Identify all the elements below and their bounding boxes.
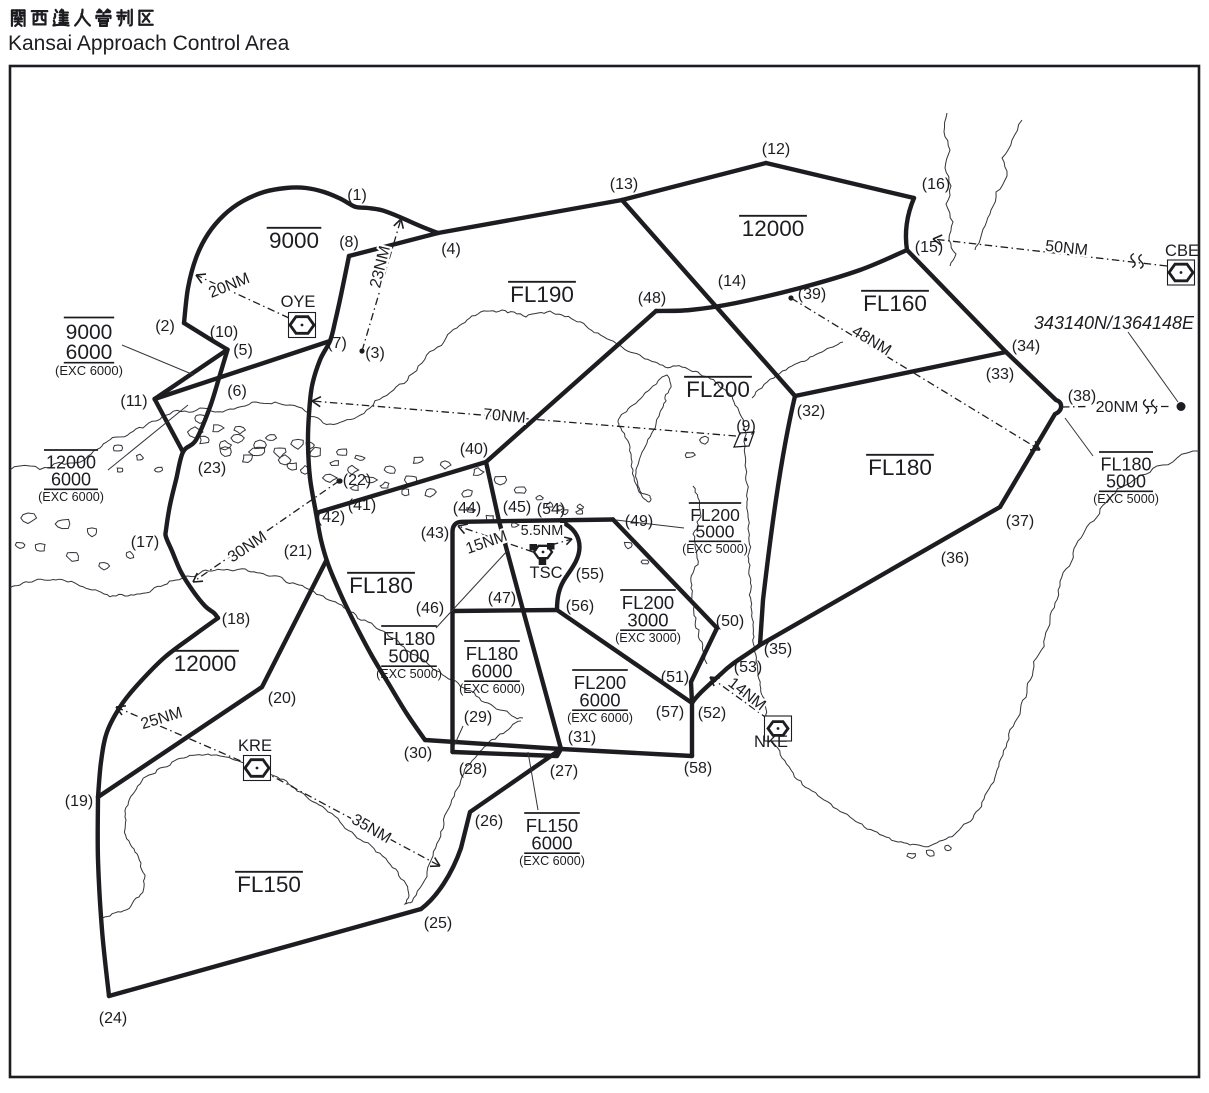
svg-text:6000: 6000: [471, 660, 512, 681]
svg-text:FL180: FL180: [349, 573, 413, 598]
svg-text:(45): (45): [503, 499, 531, 516]
svg-text:(32): (32): [797, 403, 825, 420]
svg-text:(EXC 6000): (EXC 6000): [567, 711, 633, 725]
svg-text:(10): (10): [210, 324, 238, 341]
svg-text:(37): (37): [1006, 513, 1034, 530]
svg-text:5000: 5000: [696, 522, 735, 542]
svg-text:(57): (57): [656, 704, 684, 721]
svg-text:(15): (15): [915, 239, 943, 256]
svg-text:(44): (44): [453, 500, 481, 517]
svg-text:FL200: FL200: [686, 377, 750, 402]
svg-text:KRE: KRE: [238, 737, 272, 755]
svg-text:(34): (34): [1012, 338, 1040, 355]
svg-text:(58): (58): [684, 760, 712, 777]
svg-text:5.5NM: 5.5NM: [521, 523, 564, 539]
svg-text:(52): (52): [698, 705, 726, 722]
svg-text:5000: 5000: [388, 645, 429, 666]
svg-text:FL180: FL180: [868, 455, 932, 480]
svg-text:(3): (3): [365, 345, 385, 362]
svg-text:(EXC 6000): (EXC 6000): [459, 682, 525, 696]
svg-text:(20): (20): [268, 690, 296, 707]
svg-text:(9): (9): [736, 418, 756, 435]
svg-text:(17): (17): [131, 534, 159, 551]
svg-text:Kansai Approach Control Area: Kansai Approach Control Area: [8, 32, 290, 55]
svg-text:(54): (54): [537, 501, 565, 518]
svg-text:(EXC 5000): (EXC 5000): [376, 667, 442, 681]
svg-text:(28): (28): [459, 761, 487, 778]
svg-text:(22): (22): [343, 472, 371, 489]
svg-text:(42): (42): [317, 509, 345, 526]
svg-text:5000: 5000: [1106, 472, 1146, 492]
svg-text:(41): (41): [348, 497, 376, 514]
svg-text:(30): (30): [404, 745, 432, 762]
svg-text:20NM: 20NM: [1096, 399, 1139, 416]
svg-text:(23): (23): [198, 460, 226, 477]
svg-text:(18): (18): [222, 611, 250, 628]
svg-text:(13): (13): [610, 176, 638, 193]
svg-text:(5): (5): [233, 342, 253, 359]
svg-text:(53): (53): [734, 659, 762, 676]
svg-text:(38): (38): [1068, 388, 1096, 405]
svg-text:(16): (16): [922, 176, 950, 193]
svg-text:(33): (33): [986, 366, 1014, 383]
svg-text:(EXC 6000): (EXC 6000): [519, 854, 585, 868]
svg-text:NKE: NKE: [754, 733, 788, 751]
svg-text:(43): (43): [421, 525, 449, 542]
svg-text:OYE: OYE: [281, 293, 316, 311]
svg-text:(25): (25): [424, 915, 452, 932]
svg-text:(19): (19): [65, 793, 93, 810]
svg-text:(39): (39): [798, 286, 826, 303]
svg-text:6000: 6000: [66, 341, 113, 364]
svg-text:FL150: FL150: [237, 872, 301, 897]
svg-text:(51): (51): [661, 669, 689, 686]
svg-text:(56): (56): [566, 598, 594, 615]
svg-text:(11): (11): [120, 393, 147, 410]
svg-text:12000: 12000: [174, 651, 237, 676]
svg-text:(21): (21): [284, 543, 312, 560]
svg-text:(EXC 5000): (EXC 5000): [1093, 492, 1159, 506]
svg-text:TSC: TSC: [530, 564, 563, 582]
svg-text:(2): (2): [155, 318, 175, 335]
svg-text:(47): (47): [488, 590, 516, 607]
svg-text:(49): (49): [625, 513, 653, 530]
svg-text:(7): (7): [327, 335, 347, 352]
svg-text:(EXC 6000): (EXC 6000): [38, 490, 104, 504]
svg-text:(EXC 5000): (EXC 5000): [682, 542, 748, 556]
svg-text:(EXC 3000): (EXC 3000): [615, 631, 681, 645]
svg-text:(8): (8): [339, 234, 359, 251]
svg-text:6000: 6000: [51, 470, 91, 490]
svg-text:CBE: CBE: [1165, 242, 1199, 260]
svg-text:(24): (24): [99, 1010, 127, 1027]
svg-text:(EXC 6000): (EXC 6000): [55, 363, 123, 378]
svg-text:(40): (40): [460, 441, 488, 458]
svg-text:6000: 6000: [579, 689, 620, 710]
svg-text:343140N/1364148E: 343140N/1364148E: [1034, 313, 1195, 333]
svg-text:(14): (14): [718, 273, 746, 290]
svg-text:(12): (12): [762, 141, 790, 158]
svg-text:(4): (4): [441, 241, 461, 258]
svg-text:(55): (55): [576, 566, 604, 583]
svg-text:12000: 12000: [742, 216, 805, 241]
svg-text:(6): (6): [227, 383, 247, 400]
svg-text:3000: 3000: [627, 609, 668, 630]
svg-text:FL160: FL160: [863, 291, 927, 316]
svg-text:(36): (36): [941, 550, 969, 567]
svg-text:(31): (31): [568, 729, 596, 746]
svg-text:(50): (50): [716, 613, 744, 630]
svg-text:9000: 9000: [269, 228, 319, 253]
svg-text:6000: 6000: [531, 832, 572, 853]
svg-text:(46): (46): [416, 600, 444, 617]
svg-text:(48): (48): [638, 290, 666, 307]
svg-text:(26): (26): [475, 813, 503, 830]
svg-text:FL190: FL190: [510, 282, 574, 307]
svg-text:(27): (27): [550, 763, 578, 780]
svg-text:(1): (1): [347, 187, 367, 204]
svg-text:(29): (29): [464, 709, 492, 726]
svg-text:(35): (35): [764, 641, 792, 658]
